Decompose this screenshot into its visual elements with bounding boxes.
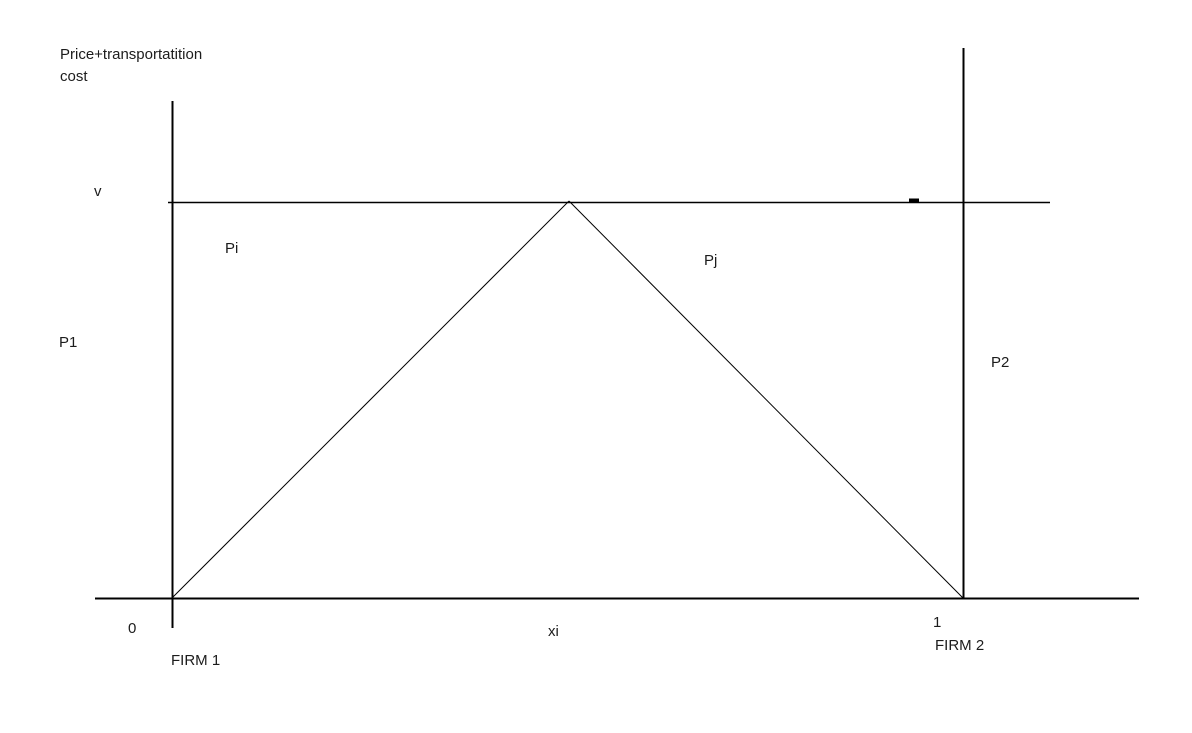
stray-dash-mark <box>909 199 919 203</box>
origin-tick-label: 0 <box>128 619 136 638</box>
v-label: v <box>94 182 102 201</box>
p1-label: P1 <box>59 333 77 352</box>
p2-label: P2 <box>991 353 1009 372</box>
y-axis-title: Price+transportatition cost <box>60 44 230 88</box>
pi-label: Pi <box>225 239 238 258</box>
firm1-label: FIRM 1 <box>171 651 220 670</box>
hotelling-diagram: Price+transportatition cost v Pi Pj P1 P… <box>0 0 1192 733</box>
diagram-lines <box>0 0 1192 733</box>
pj-label: Pj <box>704 251 717 270</box>
pi-price-schedule-line <box>172 201 569 598</box>
pj-price-schedule-line <box>569 201 963 598</box>
firm2-label: FIRM 2 <box>935 636 984 655</box>
xi-tick-label: xi <box>548 622 559 641</box>
one-tick-label: 1 <box>933 613 941 632</box>
